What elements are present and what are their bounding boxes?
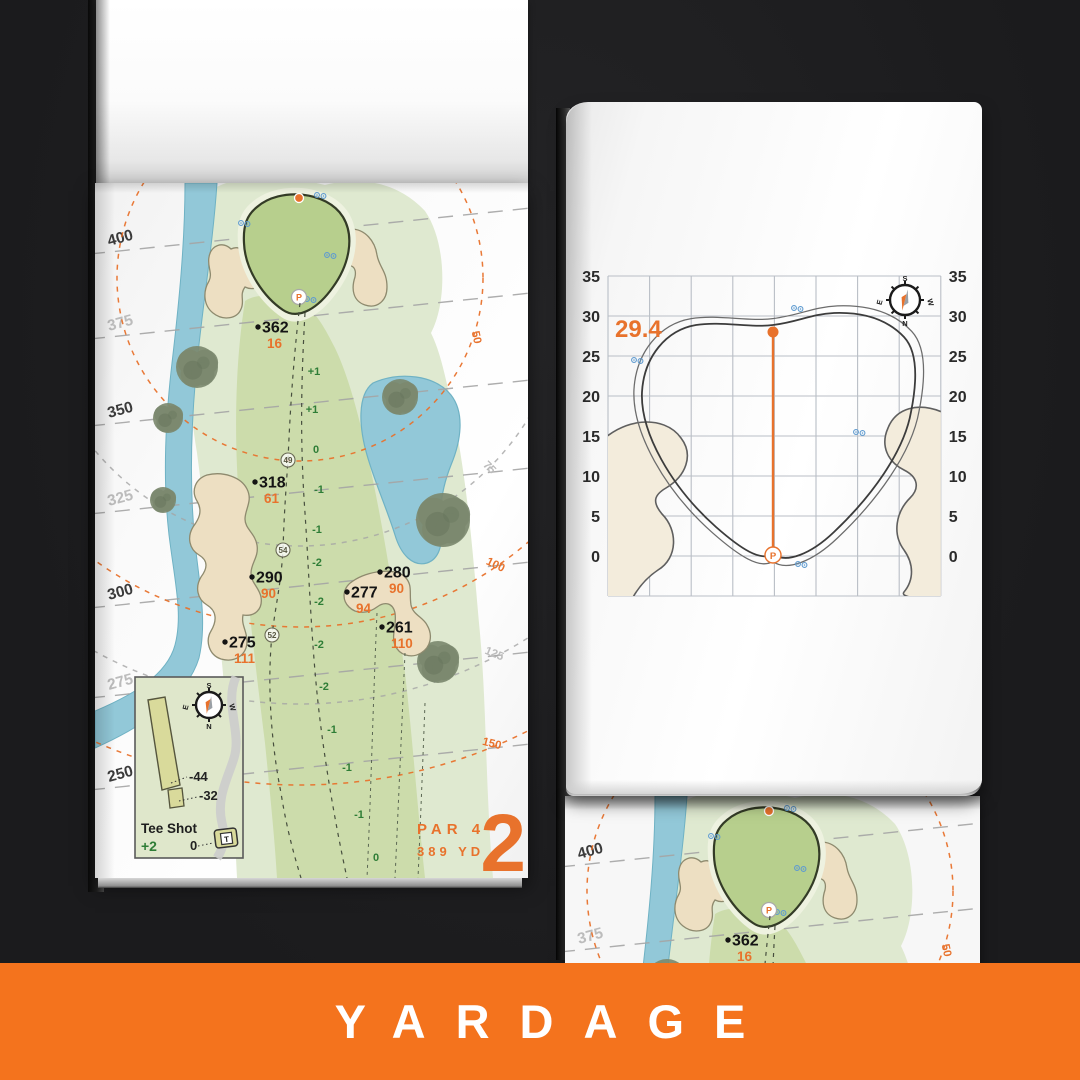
axis-tick-left: 10 (582, 469, 600, 486)
remain-value: 94 (356, 601, 372, 616)
back-edge-dot (768, 327, 779, 338)
remain-value: 110 (391, 636, 413, 651)
tee-inset-title: Tee Shot (141, 821, 198, 836)
pin-letter: P (770, 551, 777, 562)
carry-value: 362 (732, 933, 759, 950)
tee-inset-handicap: +2 (141, 838, 157, 854)
axis-tick-right: 20 (949, 389, 967, 406)
elevation-value: -1 (342, 762, 352, 774)
tree-icon (382, 379, 418, 415)
circled-distance: 54 (276, 543, 290, 557)
elevation-value: +1 (308, 366, 321, 378)
elevation-value: -2 (312, 557, 322, 569)
arc-label: 100 (484, 556, 507, 575)
axis-tick-left: 5 (591, 509, 600, 526)
carry-value: 362 (262, 320, 289, 337)
remain-value: 16 (737, 949, 753, 964)
carry-value: 277 (351, 585, 378, 602)
tree-icon (416, 493, 470, 547)
axis-tick-right: 0 (949, 549, 958, 566)
par-label: PAR 4 (417, 821, 485, 838)
axis-tick-left: 20 (582, 389, 600, 406)
circled-distance: 52 (265, 628, 279, 642)
elevation-value: -1 (327, 724, 337, 736)
back-edge-dot (295, 194, 304, 203)
yards-label: 389 YD (417, 844, 484, 859)
tree-icon (153, 403, 183, 433)
carry-value: 280 (384, 565, 411, 582)
green-detail-page: 353530302525202015151010550029.4PSNEW (566, 102, 982, 794)
tee-shot-inset: SNEW-44-32Tee Shot+20T (135, 677, 243, 858)
axis-tick-left: 35 (582, 269, 600, 286)
tee-distance: 0 (190, 838, 197, 853)
remain-value: 61 (264, 491, 280, 506)
sprinkler-icon (854, 430, 865, 436)
axis-tick-right: 5 (949, 509, 958, 526)
sprinkler-icon (792, 306, 803, 312)
yardage-banner: YARDAGE (0, 963, 1080, 1080)
distance-line-label: 250 (106, 763, 135, 786)
sprinkler-icon (632, 358, 643, 364)
tee-marker-icon: T (214, 828, 238, 849)
carry-value: 261 (386, 620, 413, 637)
distance-line-label: 375 (576, 925, 606, 948)
circled-distance-value: 49 (284, 456, 293, 465)
yardage-book-right-spread: 4003753503253002752505075100125150P49545… (552, 92, 988, 965)
distance-line-label: 325 (106, 487, 136, 510)
carry-value: 318 (259, 475, 286, 492)
compass-letter: W (925, 298, 936, 308)
pin-marker: P (762, 903, 777, 918)
distance-line-label: 275 (106, 671, 136, 694)
carry-value: 290 (256, 570, 283, 587)
axis-tick-left: 25 (582, 349, 600, 366)
page-crease (96, 0, 110, 183)
forward-tee-box (168, 788, 184, 808)
tree-icon (150, 487, 176, 513)
distance-line-label: 350 (106, 399, 135, 422)
axis-tick-right: 15 (949, 429, 967, 446)
elevation-value: 0 (373, 852, 379, 864)
tee-distance: -32 (199, 788, 218, 803)
elevation-value: -1 (354, 809, 364, 821)
elevation-value: -1 (314, 484, 324, 496)
elevation-value: 0 (313, 444, 319, 456)
axis-tick-right: 35 (949, 269, 967, 286)
pin-letter: P (766, 906, 772, 916)
remain-value: 90 (261, 586, 276, 601)
remain-value: 111 (234, 651, 256, 666)
hole-map: 4003753503253002752505075100125150P49545… (95, 183, 528, 878)
green-surface-line (642, 313, 915, 558)
hole-map: 4003753503253002752505075100125150P49545… (565, 796, 980, 965)
carry-value: 275 (229, 635, 256, 652)
green-depth-chart: 353530302525202015151010550029.4PSNEW (566, 102, 982, 794)
axis-tick-left: 30 (582, 309, 600, 326)
elevation-value: -2 (319, 681, 329, 693)
pin-marker: P (292, 290, 307, 305)
circled-distance-value: 54 (279, 546, 288, 555)
next-hole-page: 4003753503253002752505075100125150P49545… (565, 796, 980, 965)
axis-tick-left: 0 (591, 549, 600, 566)
axis-tick-right: 25 (949, 349, 967, 366)
elevation-value: -1 (312, 524, 322, 536)
hole-number: 2 (480, 798, 526, 878)
pin-marker: P (765, 547, 781, 563)
folded-blank-page (96, 0, 528, 183)
axis-tick-right: 30 (949, 309, 967, 326)
backdrop: 4003753503253002752505075100125150P49545… (0, 0, 1080, 1080)
distance-line-label: 375 (106, 312, 136, 335)
hole-map-illustration: 4003753503253002752505075100125150P49545… (95, 183, 528, 878)
tee-distance: -44 (189, 769, 209, 784)
compass-icon: SNEW (875, 274, 936, 328)
circled-distance-value: 52 (268, 631, 277, 640)
elevation-value: +1 (306, 404, 319, 416)
green-depth-chart: 353530302525202015151010550029.4PSNEW (582, 269, 966, 599)
compass-letter: S (902, 274, 907, 283)
distance-line-label: 300 (106, 581, 135, 604)
elevation-value: -2 (314, 639, 324, 651)
back-edge-dot (765, 807, 774, 816)
compass-letter: N (902, 319, 907, 328)
hole-map-page: 4003753503253002752505075100125150P49545… (95, 183, 528, 878)
axis-tick-left: 15 (582, 429, 600, 446)
elevation-value: -2 (314, 596, 324, 608)
pin-letter: P (296, 293, 302, 303)
remain-value: 90 (389, 581, 404, 596)
circled-distance: 49 (281, 453, 295, 467)
axis-tick-right: 10 (949, 469, 967, 486)
tree-icon (176, 346, 218, 388)
depth-value: 29.4 (615, 316, 662, 343)
yardage-book-left-spread: 4003753503253002752505075100125150P49545… (88, 0, 528, 892)
yardage-banner-label: YARDAGE (305, 994, 776, 1049)
compass-letter: N (206, 722, 211, 731)
compass-letter: E (875, 299, 885, 306)
compass-letter: S (206, 681, 211, 690)
page-stack-edge (98, 878, 522, 888)
next-hole-map-illustration: 4003753503253002752505075100125150P49545… (565, 796, 980, 965)
remain-value: 16 (267, 336, 283, 351)
